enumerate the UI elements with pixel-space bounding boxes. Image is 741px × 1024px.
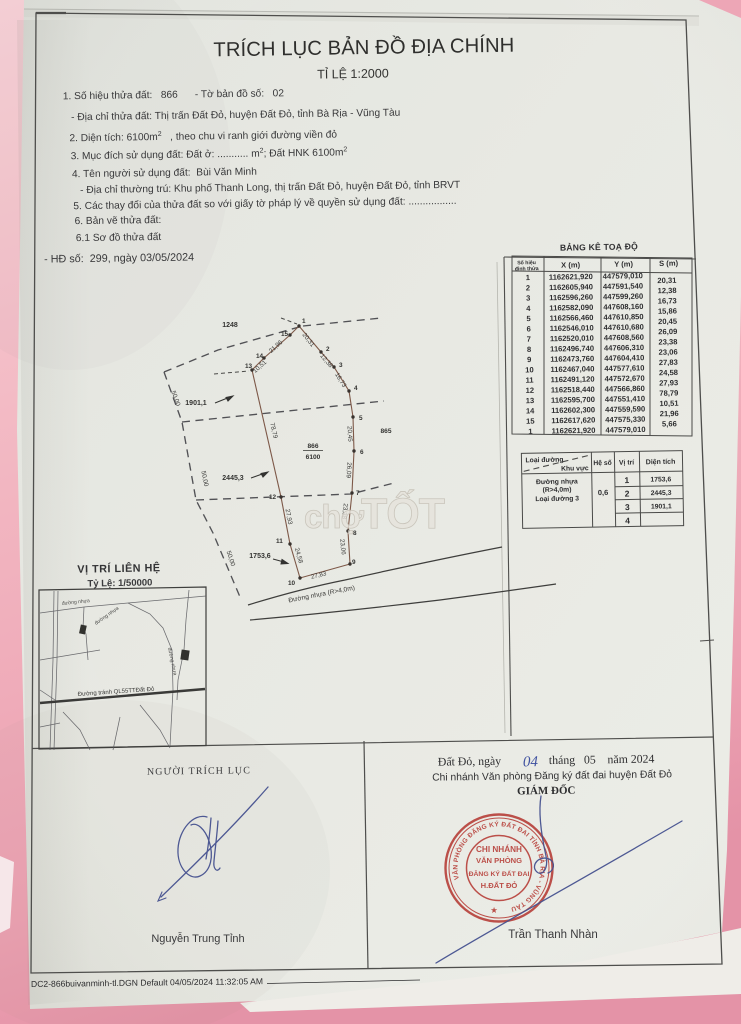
svg-text:6: 6 — [360, 449, 364, 456]
svg-text:1162491,120: 1162491,120 — [551, 375, 595, 385]
svg-text:447559,590: 447559,590 — [605, 404, 645, 414]
svg-text:tháng 05 năm 2024: tháng 05 năm 2024 — [549, 752, 655, 767]
svg-text:20,45: 20,45 — [345, 426, 353, 443]
svg-text:865: 865 — [380, 428, 391, 435]
svg-text:447606,310: 447606,310 — [604, 343, 644, 353]
svg-text:14: 14 — [526, 406, 535, 415]
svg-text:21,96: 21,96 — [660, 409, 679, 418]
svg-text:10,51: 10,51 — [659, 399, 679, 408]
svg-text:H.ĐẤT ĐỎ: H.ĐẤT ĐỎ — [481, 880, 518, 890]
svg-text:VỊ TRÍ LIÊN HỆ: VỊ TRÍ LIÊN HỆ — [77, 561, 160, 575]
svg-text:Đất Đỏ, ngày: Đất Đỏ, ngày — [438, 754, 502, 769]
svg-text:Diện tích: Diện tích — [646, 459, 676, 467]
svg-text:1162617,620: 1162617,620 — [551, 415, 595, 425]
svg-text:S (m): S (m) — [659, 259, 679, 268]
svg-text:2: 2 — [326, 346, 330, 353]
svg-text:X (m): X (m) — [561, 260, 581, 269]
svg-text:3: 3 — [339, 362, 343, 369]
svg-text:866: 866 — [307, 443, 318, 450]
svg-text:6. Bản vẽ thửa đất:: 6. Bản vẽ thửa đất: — [74, 214, 161, 227]
svg-text:Trần Thanh Nhàn: Trần Thanh Nhàn — [508, 929, 598, 941]
svg-text:★: ★ — [490, 905, 498, 915]
svg-text:1162520,010: 1162520,010 — [550, 334, 594, 344]
svg-text:1162595,700: 1162595,700 — [551, 395, 595, 405]
svg-text:447572,670: 447572,670 — [604, 374, 644, 384]
svg-text:12: 12 — [525, 386, 534, 395]
svg-text:447577,610: 447577,610 — [604, 363, 644, 373]
svg-text:23,06: 23,06 — [659, 347, 678, 356]
svg-text:1162566,460: 1162566,460 — [549, 313, 593, 323]
svg-text:11: 11 — [276, 538, 283, 545]
svg-text:1162496,740: 1162496,740 — [550, 344, 594, 354]
svg-text:4: 4 — [354, 385, 358, 392]
svg-text:Loại đường: Loại đường — [525, 457, 563, 465]
svg-text:447610,850: 447610,850 — [603, 312, 643, 322]
svg-text:NGƯỜI TRÍCH LỤC: NGƯỜI TRÍCH LỤC — [147, 764, 251, 777]
svg-text:- HĐ số: 299, ngày 03/05/2024: - HĐ số: 299, ngày 03/05/2024 — [44, 252, 194, 266]
svg-text:1162596,260: 1162596,260 — [549, 293, 593, 303]
svg-text:0,6: 0,6 — [598, 488, 609, 497]
svg-text:10: 10 — [288, 580, 296, 587]
svg-text:2445,3: 2445,3 — [651, 490, 672, 497]
svg-text:CHI NHÁNH: CHI NHÁNH — [476, 844, 522, 854]
svg-text:1753,6: 1753,6 — [249, 553, 271, 560]
svg-text:1162621,920: 1162621,920 — [549, 272, 593, 282]
svg-text:đỉnh thửa: đỉnh thửa — [515, 266, 539, 272]
svg-text:447599,260: 447599,260 — [603, 292, 643, 302]
svg-text:447579,010: 447579,010 — [605, 425, 645, 435]
svg-text:2: 2 — [526, 283, 530, 292]
svg-text:1: 1 — [624, 475, 629, 485]
svg-text:447575,330: 447575,330 — [605, 415, 645, 425]
svg-text:VĂN PHÒNG: VĂN PHÒNG — [476, 856, 522, 865]
svg-text:11: 11 — [526, 376, 535, 385]
svg-text:10: 10 — [525, 365, 534, 374]
svg-text:Hệ số: Hệ số — [593, 459, 612, 467]
svg-text:1162605,940: 1162605,940 — [549, 282, 593, 292]
svg-text:Đường nhựa: Đường nhựa — [536, 478, 578, 486]
svg-text:6: 6 — [527, 324, 531, 333]
svg-text:1162467,040: 1162467,040 — [550, 364, 594, 374]
svg-text:Nguyễn Trung Tỉnh: Nguyễn Trung Tỉnh — [151, 932, 244, 945]
svg-text:4: 4 — [625, 516, 630, 526]
svg-text:447591,540: 447591,540 — [603, 281, 643, 291]
svg-text:27,83: 27,83 — [659, 358, 678, 367]
svg-text:447579,010: 447579,010 — [603, 271, 643, 281]
svg-text:TỈ LỆ 1:2000: TỈ LỆ 1:2000 — [317, 65, 389, 81]
svg-text:chợ: chợ — [304, 498, 365, 535]
svg-text:26,09: 26,09 — [658, 327, 677, 336]
svg-text:15: 15 — [281, 331, 289, 338]
svg-text:1162602,300: 1162602,300 — [551, 405, 595, 415]
svg-text:8: 8 — [527, 345, 531, 354]
svg-text:447566,860: 447566,860 — [605, 384, 645, 394]
svg-text:447610,680: 447610,680 — [604, 322, 644, 332]
svg-text:2445,3: 2445,3 — [222, 475, 244, 482]
svg-text:BẢNG KÊ TOẠ ĐỘ: BẢNG KÊ TOẠ ĐỘ — [560, 240, 638, 252]
svg-text:78,79: 78,79 — [659, 388, 678, 397]
svg-text:20,45: 20,45 — [658, 317, 678, 326]
svg-text:26,09: 26,09 — [345, 462, 353, 479]
svg-text:Vị trí: Vị trí — [619, 459, 635, 466]
svg-text:24,58: 24,58 — [659, 368, 678, 377]
svg-text:5,66: 5,66 — [662, 419, 677, 428]
svg-text:7: 7 — [527, 335, 531, 344]
svg-text:GIÁM ĐỐC: GIÁM ĐỐC — [517, 784, 576, 798]
svg-text:447604,410: 447604,410 — [604, 353, 644, 363]
svg-text:12: 12 — [269, 494, 277, 501]
svg-text:23,38: 23,38 — [658, 337, 677, 346]
svg-text:1162473,760: 1162473,760 — [550, 354, 594, 364]
svg-text:1901,1: 1901,1 — [185, 400, 207, 407]
svg-text:5: 5 — [359, 415, 363, 422]
svg-text:3: 3 — [625, 502, 630, 512]
svg-text:1753,6: 1753,6 — [650, 476, 671, 483]
svg-text:1901,1: 1901,1 — [651, 503, 672, 510]
svg-text:(R>4,0m): (R>4,0m) — [543, 487, 572, 495]
svg-text:447608,160: 447608,160 — [603, 302, 643, 312]
svg-text:16,73: 16,73 — [658, 296, 677, 305]
svg-text:9: 9 — [527, 355, 531, 364]
svg-text:7: 7 — [356, 490, 360, 497]
svg-text:15: 15 — [526, 417, 535, 426]
svg-text:20,31: 20,31 — [657, 276, 677, 285]
svg-text:447608,560: 447608,560 — [604, 333, 644, 343]
svg-text:6.1 Sơ đồ thửa đất: 6.1 Sơ đồ thửa đất — [76, 231, 162, 244]
svg-text:04: 04 — [523, 754, 539, 770]
svg-text:1162546,010: 1162546,010 — [550, 323, 594, 333]
svg-text:27,93: 27,93 — [659, 378, 678, 387]
svg-text:1162582,090: 1162582,090 — [549, 303, 593, 313]
svg-text:15,86: 15,86 — [658, 306, 677, 315]
svg-text:1162621,920: 1162621,920 — [551, 426, 595, 436]
svg-text:1: 1 — [302, 318, 306, 325]
svg-text:9: 9 — [352, 559, 356, 566]
svg-text:12,38: 12,38 — [657, 286, 676, 295]
svg-text:6100: 6100 — [306, 454, 321, 461]
svg-text:1248: 1248 — [222, 322, 238, 329]
svg-text:3: 3 — [526, 294, 530, 303]
svg-text:Khu vực: Khu vực — [561, 465, 589, 472]
svg-text:447551,410: 447551,410 — [605, 394, 645, 404]
svg-text:13: 13 — [526, 396, 535, 405]
svg-text:TỐT: TỐT — [361, 489, 445, 538]
svg-text:Loại đường 3: Loại đường 3 — [535, 495, 579, 503]
svg-text:1162518,440: 1162518,440 — [551, 385, 595, 395]
svg-text:Y (m): Y (m) — [614, 259, 633, 268]
svg-text:2: 2 — [625, 489, 630, 499]
